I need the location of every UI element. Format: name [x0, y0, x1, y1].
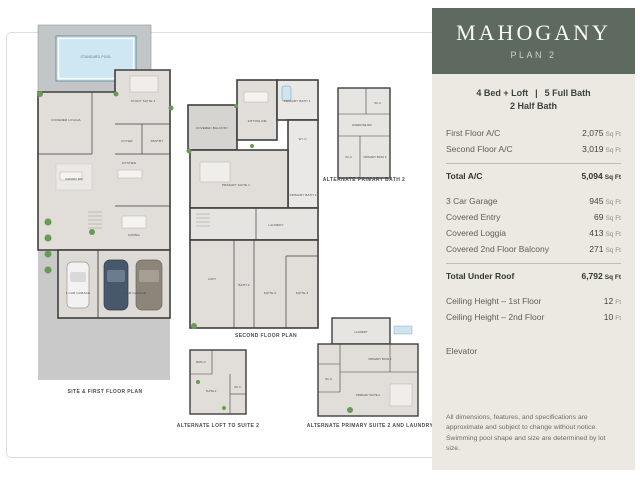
separator: |: [535, 88, 538, 98]
alt-primary-bath-walls: [338, 88, 390, 178]
spec-label: Ceiling Height – 2nd Floor: [446, 310, 544, 325]
spec-row: Covered Entry 69Sq Ft: [446, 210, 621, 226]
summary-line2: 2 Half Bath: [446, 100, 621, 113]
room-label: DINING: [128, 233, 140, 237]
spec-unit: Sq Ft: [605, 147, 621, 154]
spec-label: Ceiling Height – 1st Floor: [446, 294, 541, 309]
room-label: BATH 2: [238, 283, 249, 287]
room-label: COVERED BALCONY: [196, 126, 228, 130]
spec-label: Covered Loggia: [446, 226, 506, 241]
spec-row-total: Total A/C 5,094Sq Ft: [446, 169, 621, 185]
spec-row: Covered Loggia 413Sq Ft: [446, 226, 621, 242]
spec-unit: Sq Ft: [605, 199, 621, 206]
spec-value: 2,075: [582, 128, 603, 138]
baths-text: 5 Full Bath: [545, 88, 591, 98]
room-label: PANTRY: [151, 139, 164, 143]
spec-value: 12: [604, 296, 613, 306]
spec-value: 271: [589, 244, 603, 254]
room-label: GRAND RM: [65, 177, 83, 181]
first-floor-plan-caption: SITE & FIRST FLOOR PLAN: [30, 389, 180, 395]
spec-value: 3,019: [582, 144, 603, 154]
alt-primary-suite-plan: LAUNDRY PRIMARY BATH 2 W.I.C. PRIMARY SU…: [310, 316, 430, 420]
spec-row: 3 Car Garage 945Sq Ft: [446, 194, 621, 210]
spec-value: 413: [589, 228, 603, 238]
alt-primary-bath-caption: ALTERNATE PRIMARY BATH 2: [308, 177, 420, 183]
spec-label: First Floor A/C: [446, 126, 500, 141]
spec-row: Ceiling Height – 2nd Floor 10Ft: [446, 310, 621, 326]
alt-loft-caption: ALTERNATE LOFT TO SUITE 2: [176, 423, 260, 429]
room-label: W.I.C.: [374, 101, 382, 105]
spec-unit: Ft: [615, 315, 621, 322]
room-label: W.I.C.: [345, 155, 353, 159]
disclaimer-text: All dimensions, features, and specificat…: [446, 413, 621, 454]
room-label: PRIMARY SUITE 2: [356, 393, 380, 397]
house-walls: [38, 70, 170, 250]
room-label: PRIMARY BATH 1: [284, 99, 311, 103]
spec-value: 945: [589, 196, 603, 206]
second-floor-plan-drawing: COVERED BALCONY SITTING RM PRIMARY BATH …: [186, 78, 320, 330]
room-label: 1 CAR GARAGE: [66, 291, 90, 295]
spec-label: Covered Entry: [446, 210, 500, 225]
room-label: FOYER: [121, 139, 133, 143]
divider: [446, 163, 621, 164]
spec-unit: Sq Ft: [605, 131, 621, 138]
spacer: [446, 285, 621, 294]
spec-value: 69: [594, 212, 603, 222]
alt-loft-plan: BATH 2 SUITE 2 W.I.C.: [186, 348, 250, 418]
room-label: LAUNDRY: [354, 330, 367, 334]
spec-row: Second Floor A/C 3,019Sq Ft: [446, 142, 621, 158]
spec-row-elevator: Elevator: [446, 344, 621, 360]
spec-unit: Ft: [615, 299, 621, 306]
spacer: [446, 326, 621, 335]
spec-unit: Sq Ft: [605, 174, 621, 181]
alt-primary-suite-drawing: LAUNDRY PRIMARY BATH 2 W.I.C. PRIMARY SU…: [310, 316, 430, 420]
alt-primary-suite-caption: ALTERNATE PRIMARY SUITE 2 AND LAUNDRY: [300, 423, 440, 429]
spec-label: 3 Car Garage: [446, 194, 498, 209]
room-label: PRIMARY BATH 2: [363, 155, 386, 159]
pool-label: STANDARD POOL: [81, 55, 112, 59]
spec-label: Covered 2nd Floor Balcony: [446, 242, 549, 257]
spec-label: Total Under Roof: [446, 269, 514, 284]
room-label: SUITE 2: [206, 389, 217, 393]
spec-value: 5,094: [581, 171, 602, 181]
room-label: SUITE 3: [296, 291, 309, 295]
panel-body: 4 Bed + Loft|5 Full Bath 2 Half Bath Fir…: [432, 74, 635, 470]
spec-value: 6,792: [581, 271, 602, 281]
room-label: W.I.C.: [325, 377, 333, 381]
car-tan: [136, 260, 162, 310]
bed-bath-summary: 4 Bed + Loft|5 Full Bath 2 Half Bath: [446, 87, 621, 113]
spec-unit: Sq Ft: [605, 247, 621, 254]
alt-loft-drawing: BATH 2 SUITE 2 W.I.C.: [186, 348, 250, 418]
room-label: SITTING RM: [248, 119, 267, 123]
spec-unit: Sq Ft: [605, 274, 621, 281]
room-label: COVERED LOGGIA: [51, 118, 81, 122]
room-label: W.I.C.: [298, 137, 307, 141]
spec-value: 10: [604, 312, 613, 322]
room-label: LOFT: [208, 277, 216, 281]
spec-unit: Sq Ft: [605, 231, 621, 238]
room-label: W.I.C.: [234, 385, 242, 389]
spec-row: Ceiling Height – 1st Floor 12Ft: [446, 294, 621, 310]
plant-icons: [347, 407, 353, 413]
alt-primary-bath-drawing: W.I.C. EXERCISE RM W.I.C. PRIMARY BATH 2: [334, 84, 394, 180]
room-label: STUDY SUITE 4: [131, 99, 155, 103]
info-panel: MAHOGANY PLAN 2 4 Bed + Loft|5 Full Bath…: [432, 8, 635, 470]
spec-label: Total A/C: [446, 169, 482, 184]
summary-line1: 4 Bed + Loft|5 Full Bath: [446, 87, 621, 100]
first-floor-plan: STANDARD POOL: [30, 14, 180, 394]
room-label: PRIMARY BATH 2: [368, 357, 391, 361]
room-label: PRIMARY BATH 2: [290, 193, 317, 197]
room-label: BATH 2: [196, 360, 206, 364]
room-label: 2 CAR GARAGE: [122, 291, 146, 295]
plan-subtitle: PLAN 2: [510, 50, 556, 60]
panel-header: MAHOGANY PLAN 2: [432, 8, 635, 74]
room-label: EXERCISE RM: [352, 123, 372, 127]
room-label: PRIMARY SUITE 1: [222, 183, 250, 187]
car-blue: [104, 260, 128, 310]
spec-row-total: Total Under Roof 6,792Sq Ft: [446, 269, 621, 285]
spec-label: Second Floor A/C: [446, 142, 513, 157]
spacer: [446, 185, 621, 194]
brochure-page: STANDARD POOL: [0, 0, 640, 480]
beds-text: 4 Bed + Loft: [476, 88, 528, 98]
plan-title: MAHOGANY: [456, 22, 611, 44]
spec-row: Covered 2nd Floor Balcony 271Sq Ft: [446, 242, 621, 258]
second-floor-plan: COVERED BALCONY SITTING RM PRIMARY BATH …: [186, 78, 320, 330]
room-label: KITCHEN: [122, 161, 136, 165]
room-label: LAUNDRY: [268, 223, 283, 227]
spec-label: Elevator: [446, 344, 477, 359]
room-label: SUITE 2: [264, 291, 277, 295]
spec-unit: Sq Ft: [605, 215, 621, 222]
spec-row: First Floor A/C 2,075Sq Ft: [446, 126, 621, 142]
divider: [446, 263, 621, 264]
alt-primary-bath-plan: W.I.C. EXERCISE RM W.I.C. PRIMARY BATH 2: [334, 84, 394, 180]
spacer: [446, 335, 621, 344]
first-floor-plan-drawing: STANDARD POOL: [30, 14, 180, 394]
car-white: [67, 262, 89, 308]
